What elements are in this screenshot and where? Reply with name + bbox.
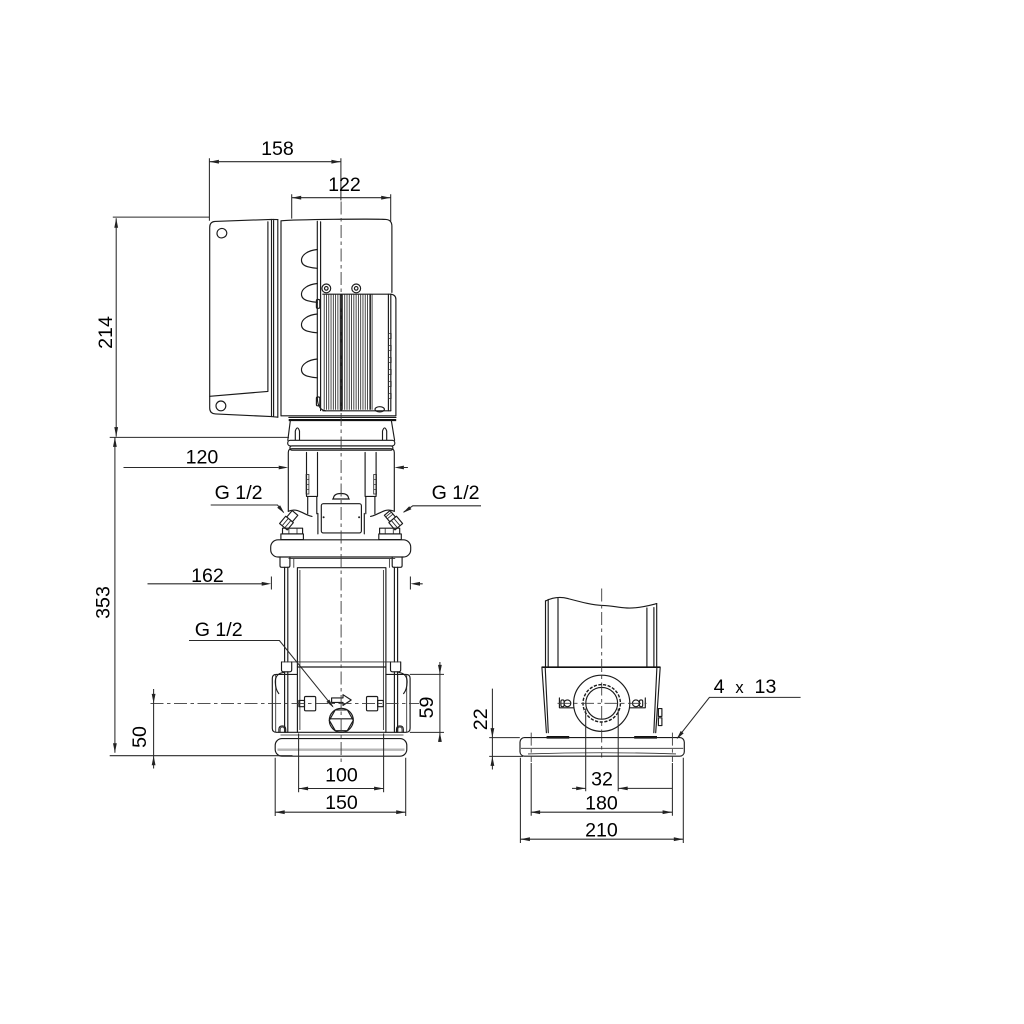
svg-text:214: 214 [95,316,117,349]
svg-text:G 1/2: G 1/2 [215,482,263,504]
svg-text:158: 158 [261,138,294,160]
svg-text:4 x 13: 4 x 13 [714,676,777,698]
svg-text:32: 32 [591,768,613,790]
svg-text:210: 210 [585,819,618,841]
svg-text:150: 150 [325,792,358,814]
svg-text:G 1/2: G 1/2 [195,619,243,641]
svg-text:59: 59 [416,697,438,719]
svg-text:180: 180 [585,792,618,814]
svg-text:120: 120 [186,446,219,468]
svg-text:353: 353 [93,586,115,619]
svg-text:50: 50 [129,726,151,748]
svg-text:122: 122 [328,174,361,196]
svg-text:22: 22 [470,708,492,730]
svg-text:100: 100 [325,765,358,787]
svg-text:G 1/2: G 1/2 [432,482,480,504]
